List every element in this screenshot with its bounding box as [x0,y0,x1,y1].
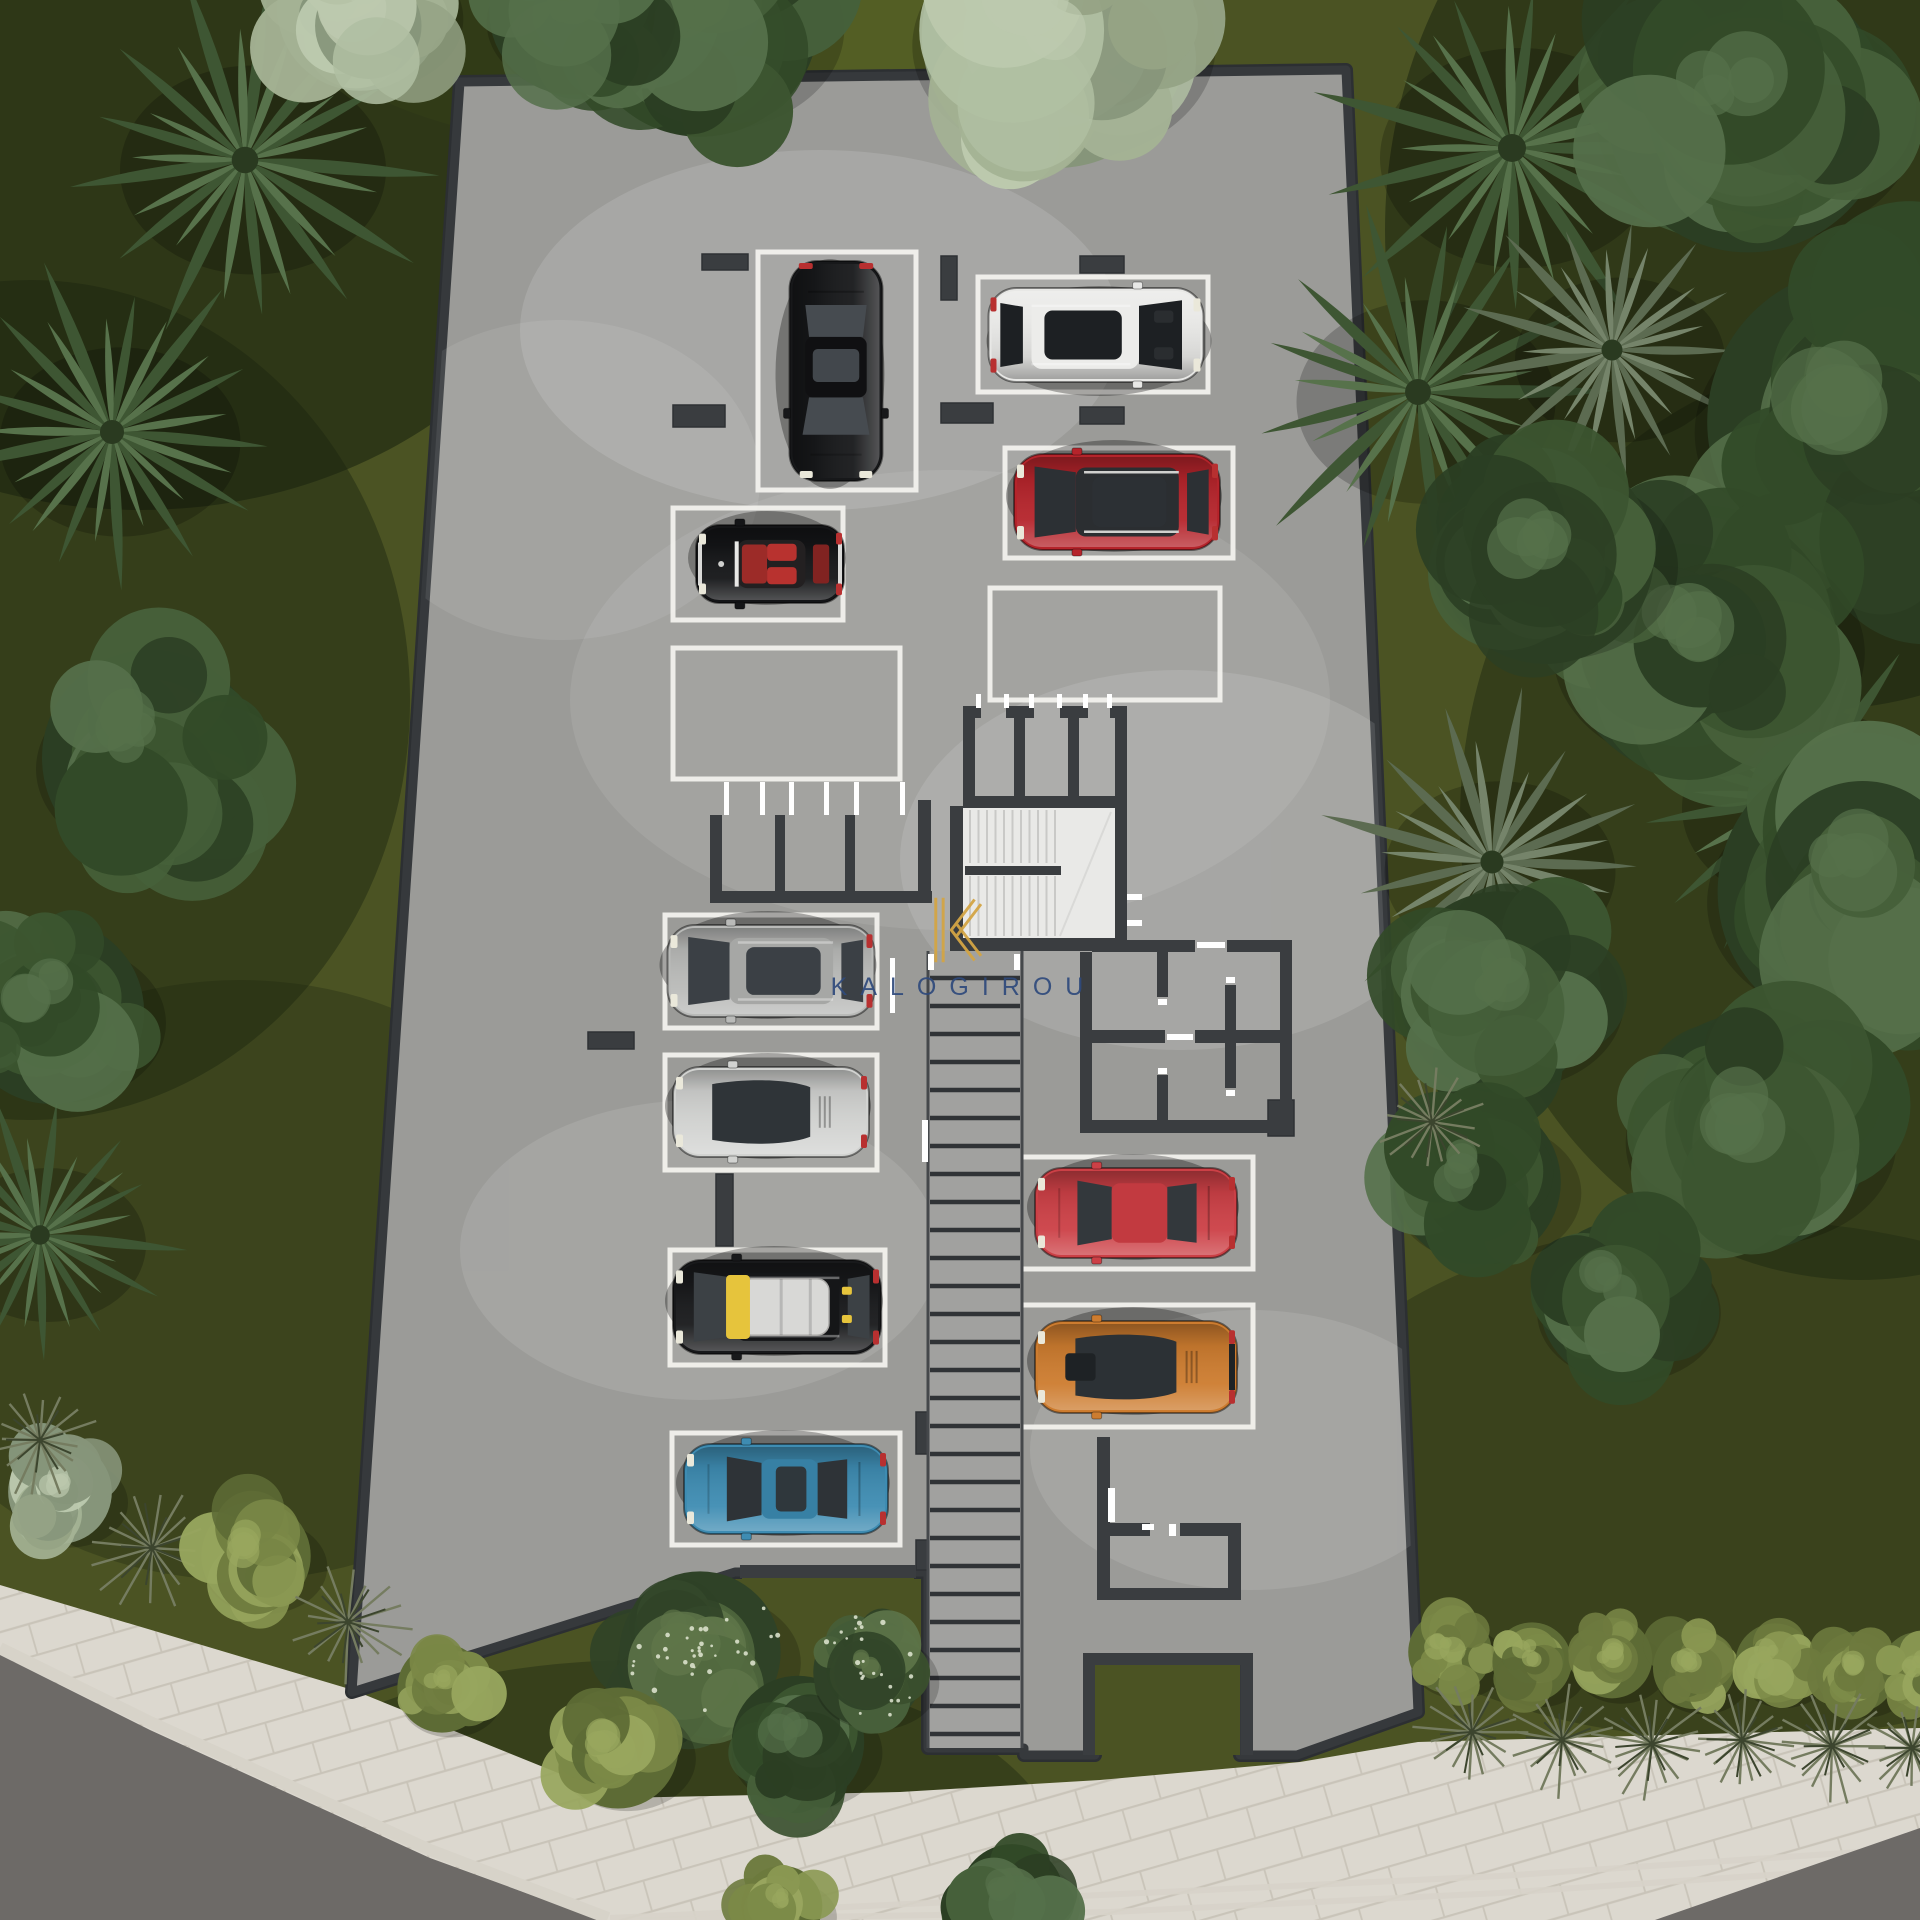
wall-segment [963,796,1127,808]
door-jamb [724,782,729,815]
column-stub [916,1540,928,1570]
door-jamb [1127,894,1142,900]
car-red-suv [1006,440,1222,556]
wall-segment [1092,1030,1165,1043]
wall-segment [1157,952,1168,997]
wall-segment [1227,940,1292,952]
column-stub [588,1032,634,1049]
column-stub [716,1174,733,1246]
car-gray-suv [660,911,877,1023]
door-jamb [1004,694,1009,708]
wall-segment [965,866,1061,875]
wall-segment [1180,1523,1228,1536]
wall-segment [918,800,931,903]
wall-segment [1225,985,1236,1030]
column-stub [673,405,725,427]
car-blue-sedan [676,1430,890,1540]
car-black-sedan [776,259,889,489]
site-plan-rendering: KALOGIROU [0,0,1920,1920]
wall-segment [1228,1523,1241,1598]
door-jamb [1083,694,1088,708]
column-stub [1080,256,1124,273]
car-classic-roadster [688,511,846,609]
car-white-suv [987,282,1212,396]
wall-segment [1014,718,1025,804]
wall-segment [1080,952,1092,1133]
wall-segment [1241,1653,1253,1755]
door-jamb [824,782,829,815]
wall-segment [1225,1043,1236,1088]
door-jamb [1167,1034,1193,1040]
wall-segment [710,891,932,903]
wall-segment [1083,1653,1095,1755]
door-jamb [854,782,859,815]
wall-segment [950,806,963,951]
wall-segment [775,815,785,895]
column-stub [941,403,993,423]
door-jamb [789,782,794,815]
door-jamb [1029,694,1034,708]
door-jamb [1127,920,1142,926]
wall-segment [1280,952,1292,1133]
door-jamb [1158,999,1167,1005]
door-jamb [1197,942,1225,948]
planter-grass [1095,1665,1240,1755]
door-jamb [890,958,895,1013]
door-jamb [760,782,765,815]
wall-segment [1068,718,1079,804]
wall-segment [1115,706,1127,951]
door-jamb [1226,1090,1235,1096]
door-jamb [922,1120,928,1162]
column-stub [916,1412,928,1454]
wall-segment [1092,940,1195,952]
car-white-coupe [665,1053,871,1163]
wall-segment [845,815,855,895]
outdoor-staircase [928,951,1022,1748]
door-jamb [1107,694,1112,708]
wall-segment [740,1565,916,1578]
wall-segment [1097,1588,1241,1600]
door-jamb [1142,1524,1154,1530]
door-jamb [976,694,981,708]
wall-segment [710,815,722,903]
door-jamb [1014,954,1020,970]
door-jamb [1057,694,1062,708]
door-jamb [1169,1524,1176,1536]
wall-segment [963,718,975,804]
car-orange-coupe [1027,1307,1239,1419]
door-jamb [900,782,905,815]
wall-segment [950,938,1117,951]
pale-bush [250,0,466,104]
column-stub [1080,407,1124,424]
door-jamb [1226,977,1235,983]
car-black-roofbox-suv [665,1246,883,1360]
door-jamb [928,954,934,970]
column-stub [941,256,957,300]
door-jamb [1108,1488,1115,1522]
column-stub [702,254,748,270]
wall-segment [1092,1120,1292,1133]
wall-segment [1083,1653,1253,1665]
car-red-sedan [1027,1154,1239,1264]
wall-segment [1157,1075,1168,1120]
scene-svg [0,0,1920,1920]
wall-segment [1195,1030,1280,1043]
door-jamb [1158,1068,1167,1074]
